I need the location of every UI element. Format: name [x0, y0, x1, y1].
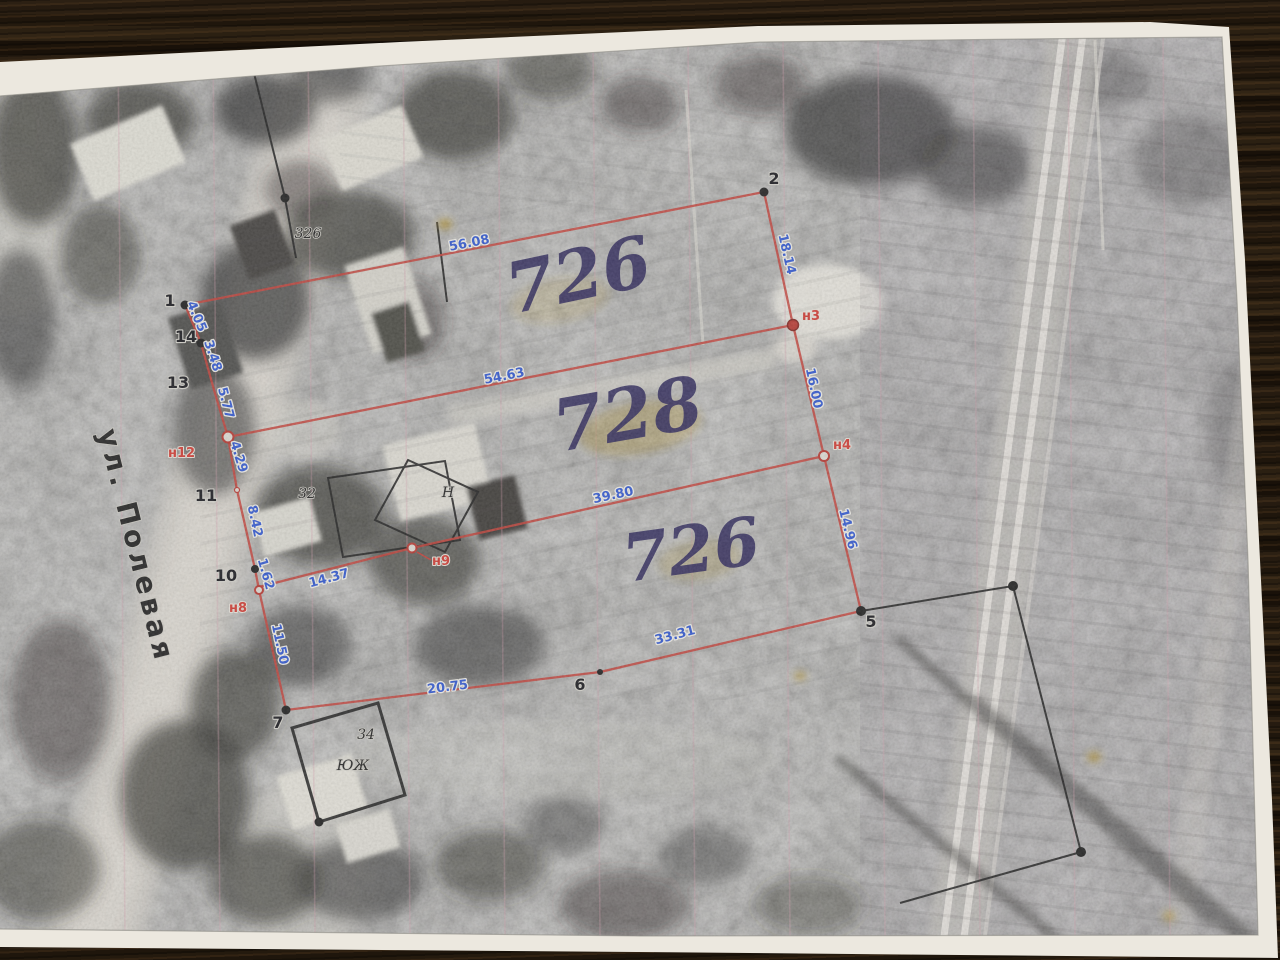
- film-grain: [0, 0, 1280, 960]
- aerial-photo: ул. Полевая 726728726 56.0854.6339.8014.…: [0, 0, 1280, 960]
- map-photo-scene: ул. Полевая 726728726 56.0854.6339.8014.…: [0, 0, 1280, 960]
- wood-table: ул. Полевая 726728726 56.0854.6339.8014.…: [0, 0, 1280, 960]
